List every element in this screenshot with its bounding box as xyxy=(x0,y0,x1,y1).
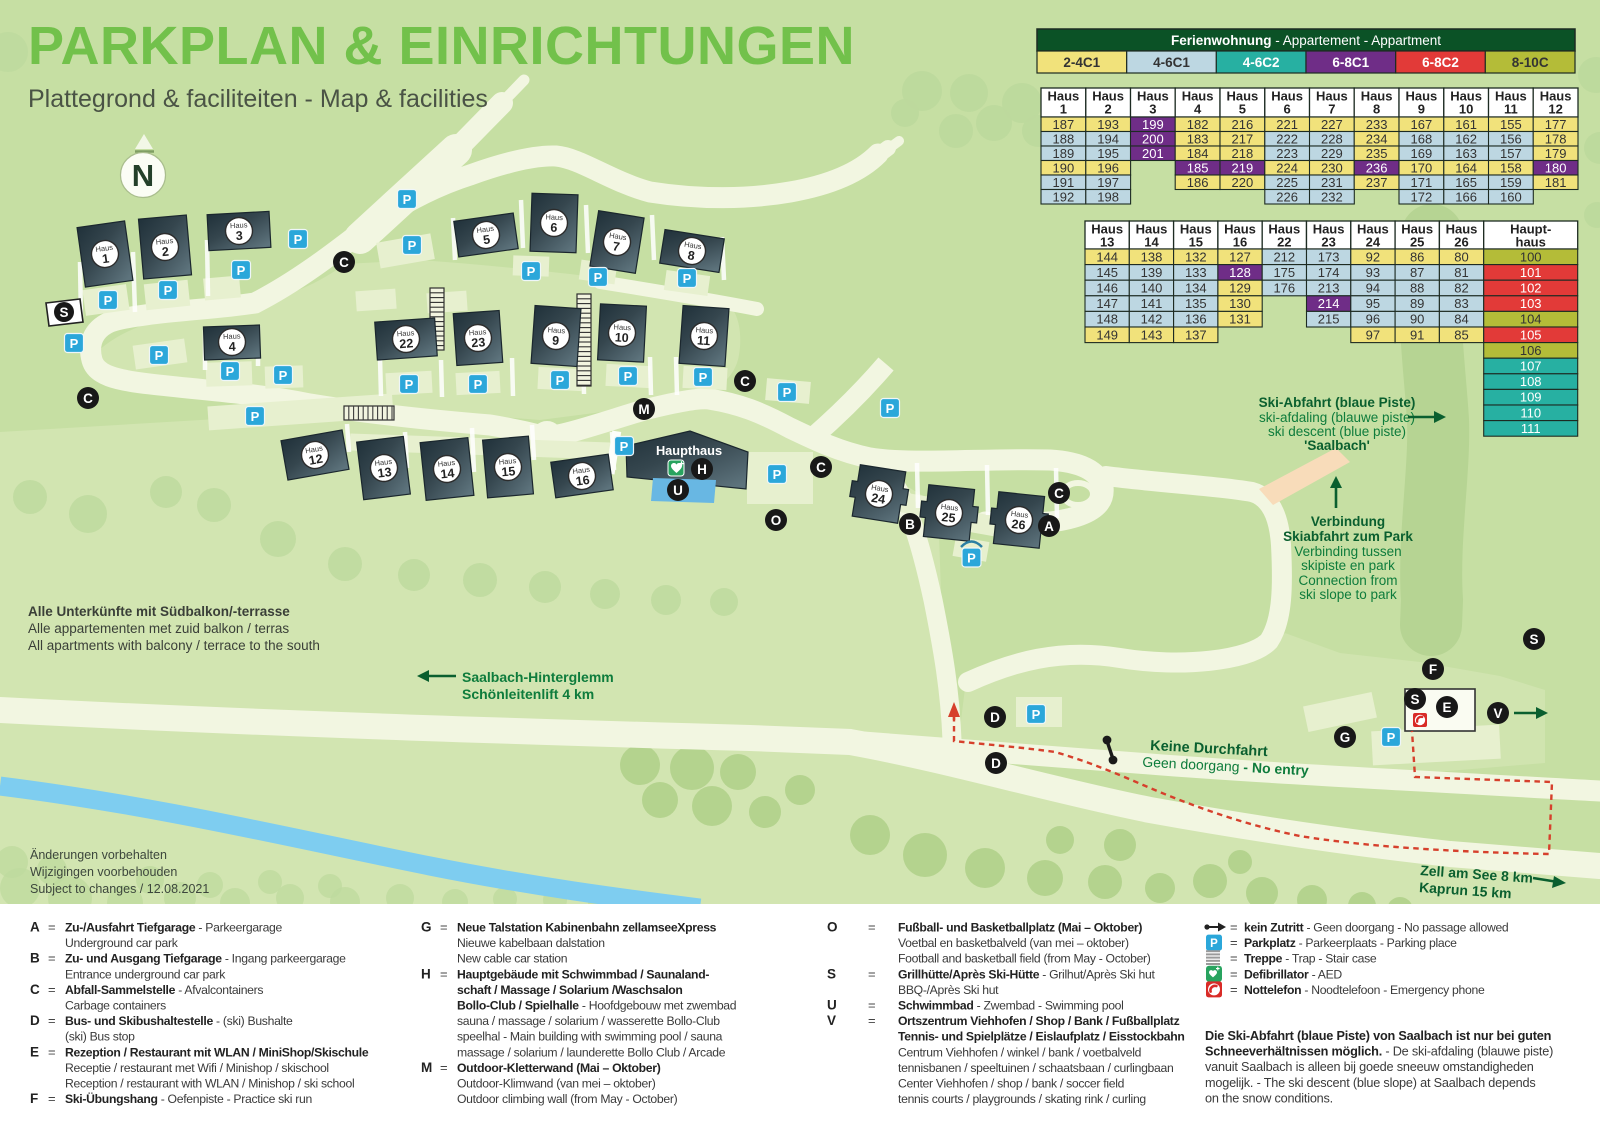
svg-text:90: 90 xyxy=(1410,312,1424,327)
svg-text:P: P xyxy=(594,270,603,285)
svg-text:6: 6 xyxy=(550,221,557,235)
svg-text:147: 147 xyxy=(1096,296,1118,311)
svg-text:C: C xyxy=(740,374,750,389)
svg-text:Voetbal en basketbalveld (van: Voetbal en basketbalveld (van mei – okto… xyxy=(898,936,1129,950)
svg-text:103: 103 xyxy=(1520,296,1542,311)
svg-text:231: 231 xyxy=(1321,175,1343,190)
svg-text:U: U xyxy=(673,483,683,498)
svg-text:171: 171 xyxy=(1411,175,1433,190)
svg-text:87: 87 xyxy=(1410,265,1424,280)
svg-text:S: S xyxy=(1529,632,1538,647)
svg-text:101: 101 xyxy=(1520,265,1542,280)
svg-text:V: V xyxy=(827,1013,836,1028)
svg-text:=: = xyxy=(440,920,448,935)
svg-text:Verbindung: Verbindung xyxy=(1311,514,1385,529)
svg-text:P: P xyxy=(527,264,536,279)
svg-text:176: 176 xyxy=(1273,281,1295,296)
svg-text:149: 149 xyxy=(1096,327,1118,342)
svg-text:Änderungen vorbehalten: Änderungen vorbehalten xyxy=(30,848,167,862)
svg-text:86: 86 xyxy=(1410,249,1424,264)
svg-text:=: = xyxy=(48,1044,56,1059)
svg-text:Ortszentrum Viehhofen / Shop /: Ortszentrum Viehhofen / Shop / Bank / Fu… xyxy=(898,1014,1180,1028)
svg-text:Ski-Übungshang - Oefenpiste -: Ski-Übungshang - Oefenpiste - Practice s… xyxy=(65,1091,312,1106)
svg-text:V: V xyxy=(1493,706,1502,721)
svg-text:=: = xyxy=(868,1013,876,1028)
svg-text:22: 22 xyxy=(1277,235,1291,250)
svg-text:82: 82 xyxy=(1454,281,1468,296)
svg-text:Saalbach-Hinterglemm: Saalbach-Hinterglemm xyxy=(462,669,614,685)
svg-text:Wijzigingen voorbehouden: Wijzigingen voorbehouden xyxy=(30,865,177,879)
svg-text:7: 7 xyxy=(1328,102,1335,117)
svg-text:144: 144 xyxy=(1096,249,1118,264)
svg-text:S: S xyxy=(827,966,836,981)
svg-text:166: 166 xyxy=(1455,189,1477,204)
svg-text:C: C xyxy=(30,982,40,997)
svg-text:215: 215 xyxy=(1318,312,1340,327)
svg-text:P: P xyxy=(886,401,895,416)
svg-text:D: D xyxy=(990,710,1000,725)
svg-text:218: 218 xyxy=(1232,146,1254,161)
svg-text:233: 233 xyxy=(1366,117,1388,132)
svg-text:Plattegrond & faciliteiten - M: Plattegrond & faciliteiten - Map & facil… xyxy=(28,85,488,113)
svg-text:2: 2 xyxy=(161,245,169,260)
svg-text:170: 170 xyxy=(1411,160,1433,175)
svg-text:110: 110 xyxy=(1520,405,1541,420)
svg-text:B: B xyxy=(30,951,40,966)
svg-text:104: 104 xyxy=(1520,312,1542,327)
svg-text:13: 13 xyxy=(1100,235,1114,250)
svg-text:200: 200 xyxy=(1142,131,1164,146)
svg-text:All apartments with balcony /: All apartments with balcony / terrace to… xyxy=(28,638,320,653)
svg-text:P: P xyxy=(1387,730,1396,745)
svg-text:109: 109 xyxy=(1520,390,1542,405)
svg-text:237: 237 xyxy=(1366,175,1388,190)
svg-text:2-4C1: 2-4C1 xyxy=(1063,55,1100,70)
svg-text:Treppe - Trap - Stair case: Treppe - Trap - Stair case xyxy=(1244,952,1377,966)
svg-text:9: 9 xyxy=(552,334,560,348)
svg-text:P: P xyxy=(967,551,976,566)
svg-text:=: = xyxy=(1230,951,1238,966)
svg-text:U: U xyxy=(827,998,837,1013)
svg-text:BBQ-/Après Ski hut: BBQ-/Après Ski hut xyxy=(898,983,999,997)
svg-text:180: 180 xyxy=(1545,160,1567,175)
svg-text:P: P xyxy=(164,283,173,298)
svg-text:'Saalbach': 'Saalbach' xyxy=(1304,438,1370,453)
svg-text:Hauptgebäude mit Schwimmbad /: Hauptgebäude mit Schwimmbad / Saunaland- xyxy=(457,967,709,981)
svg-text:mogelijk. - The ski descent (b: mogelijk. - The ski descent (blue slope)… xyxy=(1205,1076,1536,1090)
svg-text:161: 161 xyxy=(1455,117,1477,132)
svg-text:Rezeption / Restaurant mit WLA: Rezeption / Restaurant mit WLAN / MiniSh… xyxy=(65,1045,369,1059)
svg-text:92: 92 xyxy=(1366,249,1380,264)
svg-text:P: P xyxy=(1210,938,1218,950)
svg-text:155: 155 xyxy=(1500,117,1522,132)
svg-text:108: 108 xyxy=(1520,374,1542,389)
svg-text:Schwimmbad - Zwembad - Swimmin: Schwimmbad - Zwembad - Swimming pool xyxy=(898,999,1124,1013)
svg-text:146: 146 xyxy=(1096,281,1118,296)
svg-text:Bollo-Club / Spielhalle - Hoof: Bollo-Club / Spielhalle - Hoofdgebouw me… xyxy=(457,999,736,1013)
svg-text:187: 187 xyxy=(1053,117,1075,132)
svg-text:Zu- und Ausgang Tiefgarage - I: Zu- und Ausgang Tiefgarage - Ingang park… xyxy=(65,952,346,966)
svg-text:C: C xyxy=(1054,486,1064,501)
svg-text:174: 174 xyxy=(1318,265,1340,280)
svg-text:Haupthaus: Haupthaus xyxy=(656,443,722,458)
svg-text:194: 194 xyxy=(1097,131,1119,146)
svg-text:93: 93 xyxy=(1366,265,1380,280)
svg-text:C: C xyxy=(83,391,93,406)
svg-text:Nottelefon - Noodtelefoon - Em: Nottelefon - Noodtelefoon - Emergency ph… xyxy=(1244,983,1485,997)
svg-text:H: H xyxy=(697,462,707,477)
svg-text:175: 175 xyxy=(1273,265,1295,280)
svg-text:183: 183 xyxy=(1187,131,1209,146)
svg-text:=: = xyxy=(440,966,448,981)
svg-text:Outdoor climbing wall (from Ma: Outdoor climbing wall (from May - Octobe… xyxy=(457,1092,678,1106)
svg-text:Tennis- und Spielplätze / Eisl: Tennis- und Spielplätze / Eislaufplatz /… xyxy=(898,1030,1185,1044)
svg-text:Abfall-Sammelstelle - Afvalcon: Abfall-Sammelstelle - Afvalcontainers xyxy=(65,983,263,997)
svg-text:135: 135 xyxy=(1185,296,1207,311)
svg-text:D: D xyxy=(991,756,1001,771)
svg-text:143: 143 xyxy=(1141,327,1163,342)
svg-text:140: 140 xyxy=(1141,281,1163,296)
svg-text:236: 236 xyxy=(1366,160,1388,175)
svg-text:15: 15 xyxy=(1189,235,1203,250)
svg-text:80: 80 xyxy=(1454,249,1468,264)
svg-text:26: 26 xyxy=(1454,235,1468,250)
svg-text:145: 145 xyxy=(1096,265,1118,280)
svg-text:=: = xyxy=(48,982,56,997)
svg-text:26: 26 xyxy=(1011,517,1026,532)
svg-text:105: 105 xyxy=(1520,327,1542,342)
svg-text:11: 11 xyxy=(1504,102,1518,117)
svg-text:220: 220 xyxy=(1232,175,1254,190)
svg-text:Ski-Abfahrt (blaue Piste): Ski-Abfahrt (blaue Piste) xyxy=(1259,395,1416,410)
svg-text:1: 1 xyxy=(1060,102,1067,117)
svg-text:24: 24 xyxy=(870,491,886,507)
svg-text:(ski) Bus stop: (ski) Bus stop xyxy=(65,1030,135,1044)
svg-text:100: 100 xyxy=(1520,249,1542,264)
svg-text:223: 223 xyxy=(1276,146,1298,161)
svg-text:O: O xyxy=(827,920,838,935)
svg-text:P: P xyxy=(155,348,164,363)
svg-text:127: 127 xyxy=(1229,249,1251,264)
svg-text:130: 130 xyxy=(1229,296,1251,311)
svg-text:213: 213 xyxy=(1318,281,1340,296)
svg-text:9: 9 xyxy=(1418,102,1425,117)
svg-text:85: 85 xyxy=(1454,327,1468,342)
svg-text:97: 97 xyxy=(1366,327,1380,342)
svg-text:132: 132 xyxy=(1185,249,1207,264)
svg-text:S: S xyxy=(59,305,68,320)
svg-text:Verbinding tussen: Verbinding tussen xyxy=(1294,544,1401,559)
svg-text:on the snow conditions.: on the snow conditions. xyxy=(1205,1091,1333,1105)
svg-text:E: E xyxy=(30,1044,39,1059)
svg-text:15: 15 xyxy=(501,464,516,479)
svg-text:184: 184 xyxy=(1187,146,1209,161)
svg-text:25: 25 xyxy=(1410,235,1424,250)
svg-text:156: 156 xyxy=(1500,131,1522,146)
svg-text:6-8C1: 6-8C1 xyxy=(1332,55,1369,70)
svg-text:Defibrillator - AED: Defibrillator - AED xyxy=(1244,967,1342,981)
svg-text:P: P xyxy=(279,368,288,383)
svg-text:P: P xyxy=(237,263,246,278)
svg-text:P: P xyxy=(403,192,412,207)
svg-text:12: 12 xyxy=(308,452,324,468)
svg-text:191: 191 xyxy=(1053,175,1075,190)
svg-text:6: 6 xyxy=(1283,102,1290,117)
svg-text:14: 14 xyxy=(1144,235,1159,250)
svg-text:179: 179 xyxy=(1545,146,1567,161)
svg-text:83: 83 xyxy=(1454,296,1468,311)
svg-text:Ferienwohnung - Appartement -: Ferienwohnung - Appartement - Appartment xyxy=(1171,33,1441,48)
svg-text:217: 217 xyxy=(1232,131,1254,146)
svg-text:25: 25 xyxy=(941,510,956,525)
svg-text:162: 162 xyxy=(1455,131,1477,146)
svg-text:4: 4 xyxy=(1194,102,1202,117)
svg-text:Fußball- und Basketballplatz (: Fußball- und Basketballplatz (Mai – Okto… xyxy=(898,921,1142,935)
svg-text:182: 182 xyxy=(1187,117,1209,132)
svg-text:157: 157 xyxy=(1500,146,1522,161)
svg-text:M: M xyxy=(421,1060,432,1075)
svg-text:137: 137 xyxy=(1185,327,1207,342)
svg-text:F: F xyxy=(1429,662,1437,677)
svg-text:173: 173 xyxy=(1318,249,1340,264)
svg-text:P: P xyxy=(783,385,792,400)
svg-text:13: 13 xyxy=(377,465,393,481)
svg-text:=: = xyxy=(1230,920,1238,935)
svg-text:B: B xyxy=(905,517,915,532)
svg-text:23: 23 xyxy=(1321,235,1335,250)
svg-text:94: 94 xyxy=(1366,281,1380,296)
svg-text:=: = xyxy=(48,951,56,966)
svg-text:N: N xyxy=(132,158,154,193)
svg-text:234: 234 xyxy=(1366,131,1388,146)
svg-text:Subject to changes / 12.08.202: Subject to changes / 12.08.2021 xyxy=(30,882,209,896)
svg-text:224: 224 xyxy=(1276,160,1298,175)
svg-text:S: S xyxy=(1410,692,1419,707)
svg-text:131: 131 xyxy=(1229,312,1251,327)
svg-text:232: 232 xyxy=(1321,189,1343,204)
svg-text:schaft / Massage / Solarium /W: schaft / Massage / Solarium /Waschsalon xyxy=(457,983,683,997)
svg-text:227: 227 xyxy=(1321,117,1343,132)
svg-text:=: = xyxy=(868,998,876,1013)
svg-text:192: 192 xyxy=(1053,189,1075,204)
svg-text:88: 88 xyxy=(1410,281,1424,296)
svg-text:141: 141 xyxy=(1141,296,1163,311)
svg-text:24: 24 xyxy=(1366,235,1381,250)
svg-text:212: 212 xyxy=(1273,249,1295,264)
svg-text:Centrum Viehhofen / winkel / b: Centrum Viehhofen / winkel / bank / voet… xyxy=(898,1045,1141,1059)
svg-text:222: 222 xyxy=(1276,131,1298,146)
svg-text:23: 23 xyxy=(471,335,486,350)
svg-text:163: 163 xyxy=(1455,146,1477,161)
svg-text:=: = xyxy=(440,1060,448,1075)
svg-text:ski-afdaling (blauwe piste): ski-afdaling (blauwe piste) xyxy=(1259,410,1415,425)
svg-text:14: 14 xyxy=(440,466,455,481)
svg-text:C: C xyxy=(339,255,349,270)
svg-text:216: 216 xyxy=(1232,117,1254,132)
svg-text:=: = xyxy=(48,1091,56,1106)
svg-text:haus: haus xyxy=(1516,235,1546,250)
svg-text:5: 5 xyxy=(1239,102,1246,117)
svg-text:P: P xyxy=(104,293,113,308)
svg-text:E: E xyxy=(1442,700,1451,715)
svg-text:177: 177 xyxy=(1545,117,1567,132)
svg-text:197: 197 xyxy=(1097,175,1119,190)
svg-text:Connection from: Connection from xyxy=(1298,573,1397,588)
svg-text:Outdoor-Kletterwand (Mai – Okt: Outdoor-Kletterwand (Mai – Oktober) xyxy=(457,1061,661,1075)
svg-text:138: 138 xyxy=(1141,249,1163,264)
svg-text:P: P xyxy=(251,409,260,424)
svg-text:3: 3 xyxy=(1149,102,1156,117)
svg-text:=: = xyxy=(48,1013,56,1028)
svg-text:H: H xyxy=(421,966,431,981)
svg-text:Alle appartementen met zuid ba: Alle appartementen met zuid balkon / ter… xyxy=(28,621,289,636)
svg-text:P: P xyxy=(1032,707,1041,722)
svg-text:172: 172 xyxy=(1411,189,1433,204)
svg-text:Alle Unterkünfte mit Südbalkon: Alle Unterkünfte mit Südbalkon/-terrasse xyxy=(28,604,290,619)
svg-text:134: 134 xyxy=(1185,281,1207,296)
svg-text:P: P xyxy=(773,467,782,482)
svg-text:PARKPLAN & EINRICHTUNGEN: PARKPLAN & EINRICHTUNGEN xyxy=(28,16,855,76)
svg-text:214: 214 xyxy=(1318,296,1340,311)
svg-text:D: D xyxy=(30,1013,40,1028)
svg-text:228: 228 xyxy=(1321,131,1343,146)
svg-text:221: 221 xyxy=(1276,117,1298,132)
svg-text:O: O xyxy=(771,513,782,528)
svg-text:New cable car station: New cable car station xyxy=(457,952,567,966)
svg-text:158: 158 xyxy=(1500,160,1522,175)
svg-text:129: 129 xyxy=(1229,281,1251,296)
svg-text:178: 178 xyxy=(1545,131,1567,146)
svg-text:111: 111 xyxy=(1521,421,1541,436)
svg-text:Nieuwe kabelbaan dalstation: Nieuwe kabelbaan dalstation xyxy=(457,936,605,950)
svg-text:186: 186 xyxy=(1187,175,1209,190)
svg-text:11: 11 xyxy=(697,333,711,348)
svg-text:Schönleitenlift 4 km: Schönleitenlift 4 km xyxy=(462,686,594,702)
svg-text:159: 159 xyxy=(1500,175,1522,190)
svg-text:10: 10 xyxy=(1459,102,1473,117)
svg-text:Underground car park: Underground car park xyxy=(65,936,179,950)
svg-text:G: G xyxy=(421,920,432,935)
svg-text:95: 95 xyxy=(1366,296,1380,311)
svg-text:=: = xyxy=(868,966,876,981)
svg-text:6-8C2: 6-8C2 xyxy=(1422,55,1459,70)
svg-text:speelhal - Main building with: speelhal - Main building with swimming p… xyxy=(457,1030,723,1044)
svg-text:Receptie / restaurant met Wifi: Receptie / restaurant met Wifi / Minisho… xyxy=(65,1061,329,1075)
svg-text:195: 195 xyxy=(1097,146,1119,161)
svg-text:C: C xyxy=(816,460,826,475)
svg-text:P: P xyxy=(226,364,235,379)
svg-text:Schneeverhältnissen möglich. -: Schneeverhältnissen möglich. - De ski-af… xyxy=(1205,1045,1553,1059)
svg-text:168: 168 xyxy=(1411,131,1433,146)
svg-text:Bus- und Skibushaltestelle - (: Bus- und Skibushaltestelle - (ski) Busha… xyxy=(65,1014,293,1028)
svg-text:3: 3 xyxy=(235,229,243,243)
svg-text:235: 235 xyxy=(1366,146,1388,161)
svg-text:Entrance underground car park: Entrance underground car park xyxy=(65,967,226,981)
svg-text:84: 84 xyxy=(1454,312,1468,327)
svg-text:A: A xyxy=(30,920,40,935)
svg-text:F: F xyxy=(30,1091,38,1106)
svg-text:198: 198 xyxy=(1097,189,1119,204)
svg-text:tennis courts / playgrounds /: tennis courts / playgrounds / skating ri… xyxy=(898,1092,1146,1106)
svg-text:skipiste en park: skipiste en park xyxy=(1301,558,1395,573)
svg-text:89: 89 xyxy=(1410,296,1424,311)
svg-text:10: 10 xyxy=(614,330,629,345)
svg-text:164: 164 xyxy=(1455,160,1477,175)
svg-text:185: 185 xyxy=(1187,160,1209,175)
svg-text:P: P xyxy=(294,232,303,247)
svg-text:P: P xyxy=(405,377,414,392)
svg-text:=: = xyxy=(1230,966,1238,981)
svg-text:196: 196 xyxy=(1097,160,1119,175)
svg-text:106: 106 xyxy=(1520,343,1542,358)
svg-text:167: 167 xyxy=(1411,117,1433,132)
svg-text:=: = xyxy=(1230,982,1238,997)
svg-text:kein Zutritt - Geen doorgang -: kein Zutritt - Geen doorgang - No passag… xyxy=(1244,921,1508,935)
svg-text:160: 160 xyxy=(1500,189,1522,204)
svg-text:Skiabfahrt zum Park: Skiabfahrt zum Park xyxy=(1283,529,1413,544)
svg-text:G: G xyxy=(1340,730,1351,745)
svg-text:148: 148 xyxy=(1096,312,1118,327)
svg-text:Carbage containers: Carbage containers xyxy=(65,999,166,1013)
svg-text:226: 226 xyxy=(1276,189,1298,204)
svg-text:P: P xyxy=(683,271,692,286)
svg-text:Die Ski-Abfahrt (blaue Piste): Die Ski-Abfahrt (blaue Piste) von Saalba… xyxy=(1205,1029,1551,1043)
svg-text:165: 165 xyxy=(1455,175,1477,190)
svg-text:P: P xyxy=(556,373,565,388)
svg-text:P: P xyxy=(699,370,708,385)
svg-text:219: 219 xyxy=(1232,160,1254,175)
svg-text:102: 102 xyxy=(1520,281,1542,296)
svg-text:181: 181 xyxy=(1545,175,1567,190)
svg-text:Grillhütte/Après Ski-Hütte - G: Grillhütte/Après Ski-Hütte - Grilhut/Apr… xyxy=(898,967,1155,981)
svg-text:Zu-/Ausfahrt Tiefgarage - Park: Zu-/Ausfahrt Tiefgarage - Parkeergarage xyxy=(65,921,283,935)
svg-text:massage / solarium / launderet: massage / solarium / launderette Bollo C… xyxy=(457,1045,726,1059)
svg-text:128: 128 xyxy=(1229,265,1251,280)
svg-text:189: 189 xyxy=(1053,146,1075,161)
svg-text:vanuit Saalbach is alleen bij: vanuit Saalbach is alleen bij goede snee… xyxy=(1205,1060,1534,1074)
svg-text:P: P xyxy=(474,377,483,392)
svg-text:4-6C1: 4-6C1 xyxy=(1153,55,1190,70)
svg-text:169: 169 xyxy=(1411,146,1433,161)
svg-text:Reception / restaurant with WL: Reception / restaurant with WLAN / Minis… xyxy=(65,1077,354,1091)
svg-text:M: M xyxy=(638,402,649,417)
svg-text:=: = xyxy=(1230,935,1238,950)
svg-text:81: 81 xyxy=(1454,265,1468,280)
svg-text:Center Viehhofen / shop / bank: Center Viehhofen / shop / bank / soccer … xyxy=(898,1077,1124,1091)
svg-text:142: 142 xyxy=(1141,312,1163,327)
svg-text:190: 190 xyxy=(1053,160,1075,175)
svg-text:188: 188 xyxy=(1053,131,1075,146)
svg-text:4: 4 xyxy=(228,340,235,354)
svg-text:136: 136 xyxy=(1185,312,1207,327)
svg-text:tennisbanen / speeltuinen / sc: tennisbanen / speeltuinen / schaatsbaan … xyxy=(898,1061,1173,1075)
svg-text:230: 230 xyxy=(1321,160,1343,175)
svg-text:201: 201 xyxy=(1142,146,1164,161)
svg-text:Football and basketball field: Football and basketball field (from May … xyxy=(898,952,1151,966)
svg-text:sauna / massage / solarium / w: sauna / massage / solarium / wasserette … xyxy=(457,1014,720,1028)
svg-text:22: 22 xyxy=(399,336,414,351)
svg-text:Neue Talstation Kabinenbahn ze: Neue Talstation Kabinenbahn zellamseeXpr… xyxy=(457,921,717,935)
svg-text:225: 225 xyxy=(1276,175,1298,190)
svg-text:96: 96 xyxy=(1366,312,1380,327)
svg-text:A: A xyxy=(1044,519,1054,534)
svg-text:16: 16 xyxy=(1233,235,1247,250)
svg-text:4-6C2: 4-6C2 xyxy=(1243,55,1280,70)
svg-text:Parkplatz - Parkeerplaats - Pa: Parkplatz - Parkeerplaats - Parking plac… xyxy=(1244,936,1457,950)
svg-text:=: = xyxy=(48,920,56,935)
svg-text:P: P xyxy=(620,439,629,454)
svg-text:91: 91 xyxy=(1410,327,1424,342)
